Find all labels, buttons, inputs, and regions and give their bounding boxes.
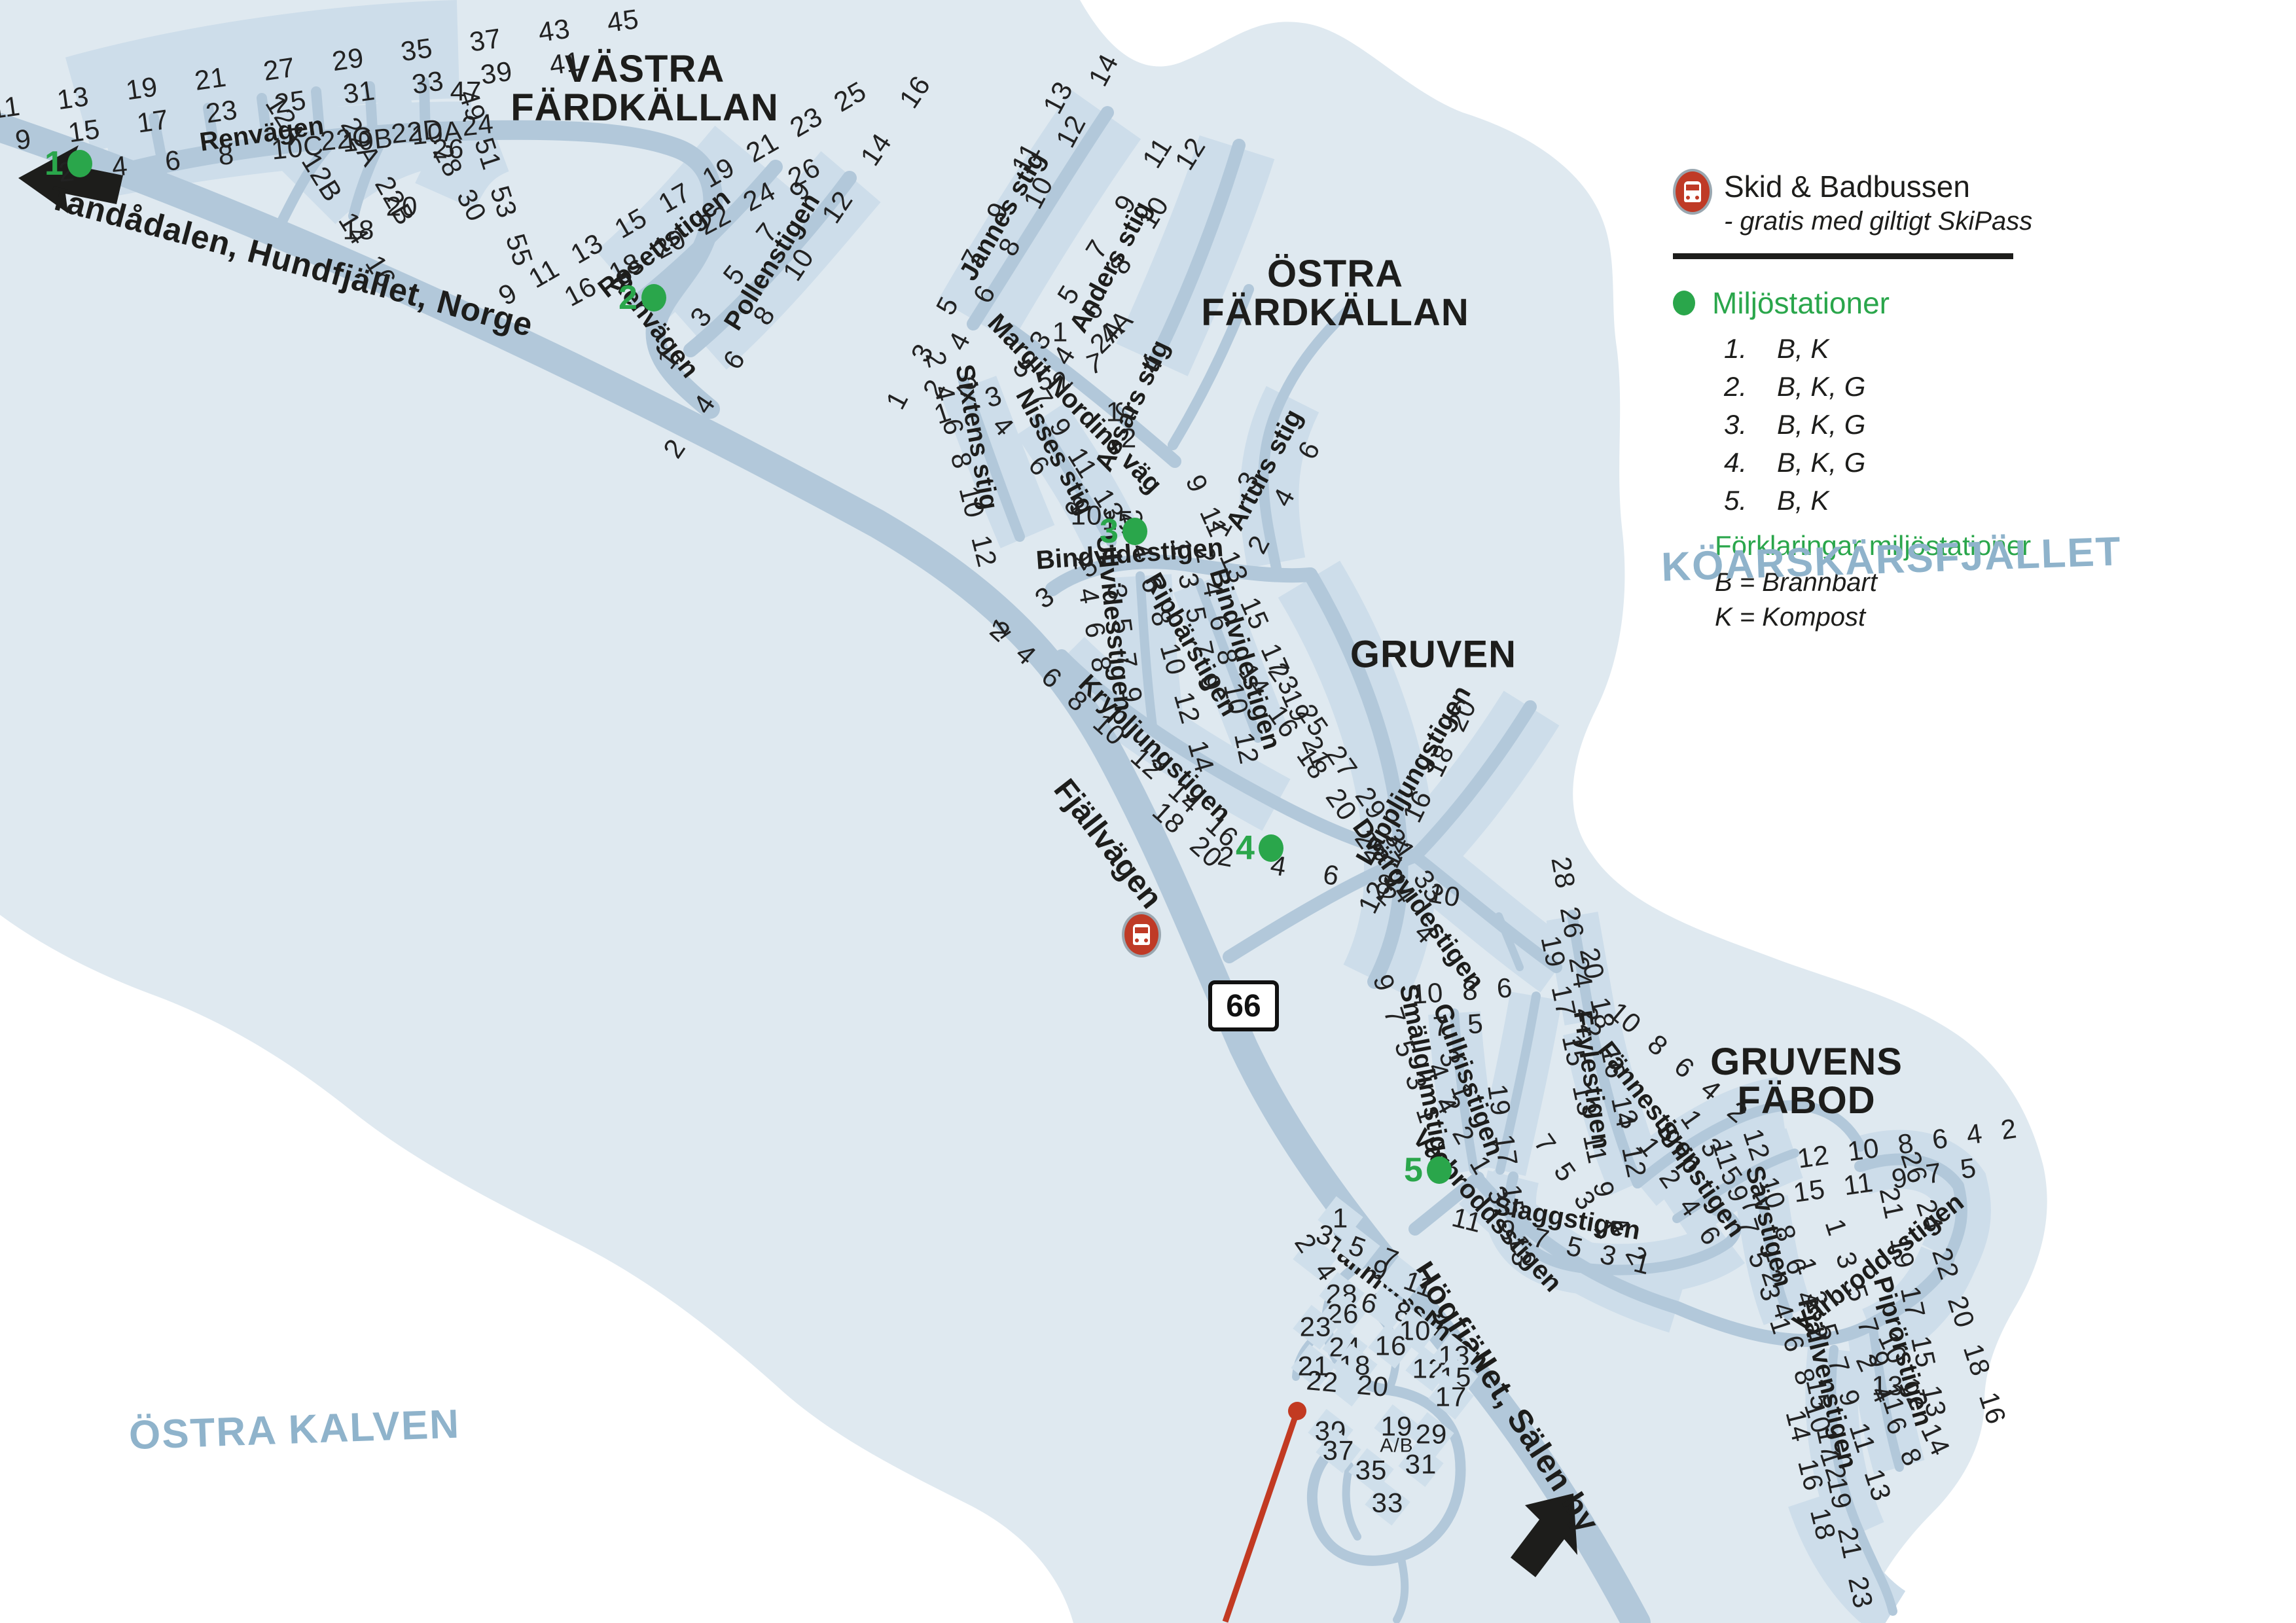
region-label-gruven: GRUVEN bbox=[1350, 635, 1516, 673]
legend-explain-line: K = Kompost bbox=[1715, 600, 2039, 635]
bus-stop-icon bbox=[1122, 912, 1161, 957]
miljostation-number: 3 bbox=[1100, 512, 1119, 551]
miljostation-number: 5 bbox=[1404, 1150, 1423, 1190]
map-canvas: Skid & Badbussen - gratis med giltigt Sk… bbox=[0, 0, 2296, 1623]
numbers-7-5: 7 5 bbox=[1432, 1010, 1484, 1041]
numbers-16: 16 bbox=[1375, 1332, 1407, 1361]
numbers-35: 35 bbox=[1355, 1457, 1388, 1485]
green-dot-icon bbox=[1427, 1156, 1452, 1184]
region-label-östra-färdkällan: ÖSTRA FÄRDKÄLLAN bbox=[1201, 255, 1469, 332]
legend-bus-title: Skid & Badbussen bbox=[1724, 169, 2032, 204]
numbers-23: 23 bbox=[1300, 1313, 1332, 1342]
legend-station-row: 4.B, K, G bbox=[1724, 444, 1865, 482]
numbers-20: 20 bbox=[386, 193, 418, 221]
miljostation-number: 2 bbox=[619, 278, 637, 317]
legend-station-row: 2.B, K, G bbox=[1724, 368, 1865, 406]
legend-station-row: 3.B, K, G bbox=[1724, 406, 1865, 444]
numbers-18: 18 bbox=[343, 217, 375, 245]
numbers-22-20: 22 20 bbox=[1305, 1366, 1390, 1402]
numbers-37: 37 bbox=[1323, 1437, 1355, 1465]
route-66-sign: 66 bbox=[1208, 980, 1279, 1031]
miljostation-number: 4 bbox=[1236, 829, 1255, 868]
legend-station-row: 1.B, K bbox=[1724, 330, 1865, 368]
miljostation-2: 2 bbox=[619, 278, 666, 317]
numbers-33: 33 bbox=[1372, 1489, 1404, 1518]
legend-stations-table: 1.B, K2.B, K, G3.B, K, G4.B, K, G5.B, K bbox=[1724, 330, 1865, 520]
numbers-1: 1 bbox=[1106, 399, 1122, 427]
legend-station-row: 5.B, K bbox=[1724, 482, 1865, 520]
green-dot-icon bbox=[641, 284, 666, 312]
legend-divider bbox=[1673, 253, 2013, 259]
legend-bus-subtitle: - gratis med giltigt SkiPass bbox=[1724, 207, 2032, 236]
green-dot-icon bbox=[67, 150, 92, 177]
numbers-17: 17 bbox=[1435, 1383, 1467, 1412]
miljostation-4: 4 bbox=[1236, 829, 1283, 868]
miljostation-3: 3 bbox=[1100, 512, 1147, 551]
numbers-2: 2 bbox=[1121, 425, 1137, 453]
numbers-10-8-6: 10 8 6 bbox=[1410, 974, 1513, 1009]
numbers-31: 31 bbox=[1405, 1451, 1437, 1479]
miljostation-5: 5 bbox=[1404, 1150, 1452, 1190]
numbers-10: 10 bbox=[1071, 502, 1103, 530]
bus-icon bbox=[1673, 169, 1712, 215]
green-dot-icon bbox=[1673, 291, 1695, 315]
green-dot-icon bbox=[1259, 834, 1283, 862]
green-dot-icon bbox=[1122, 518, 1147, 545]
legend-stations-title: Miljöstationer bbox=[1712, 285, 1890, 321]
miljostation-number: 1 bbox=[45, 144, 63, 183]
miljostation-1: 1 bbox=[45, 144, 92, 183]
